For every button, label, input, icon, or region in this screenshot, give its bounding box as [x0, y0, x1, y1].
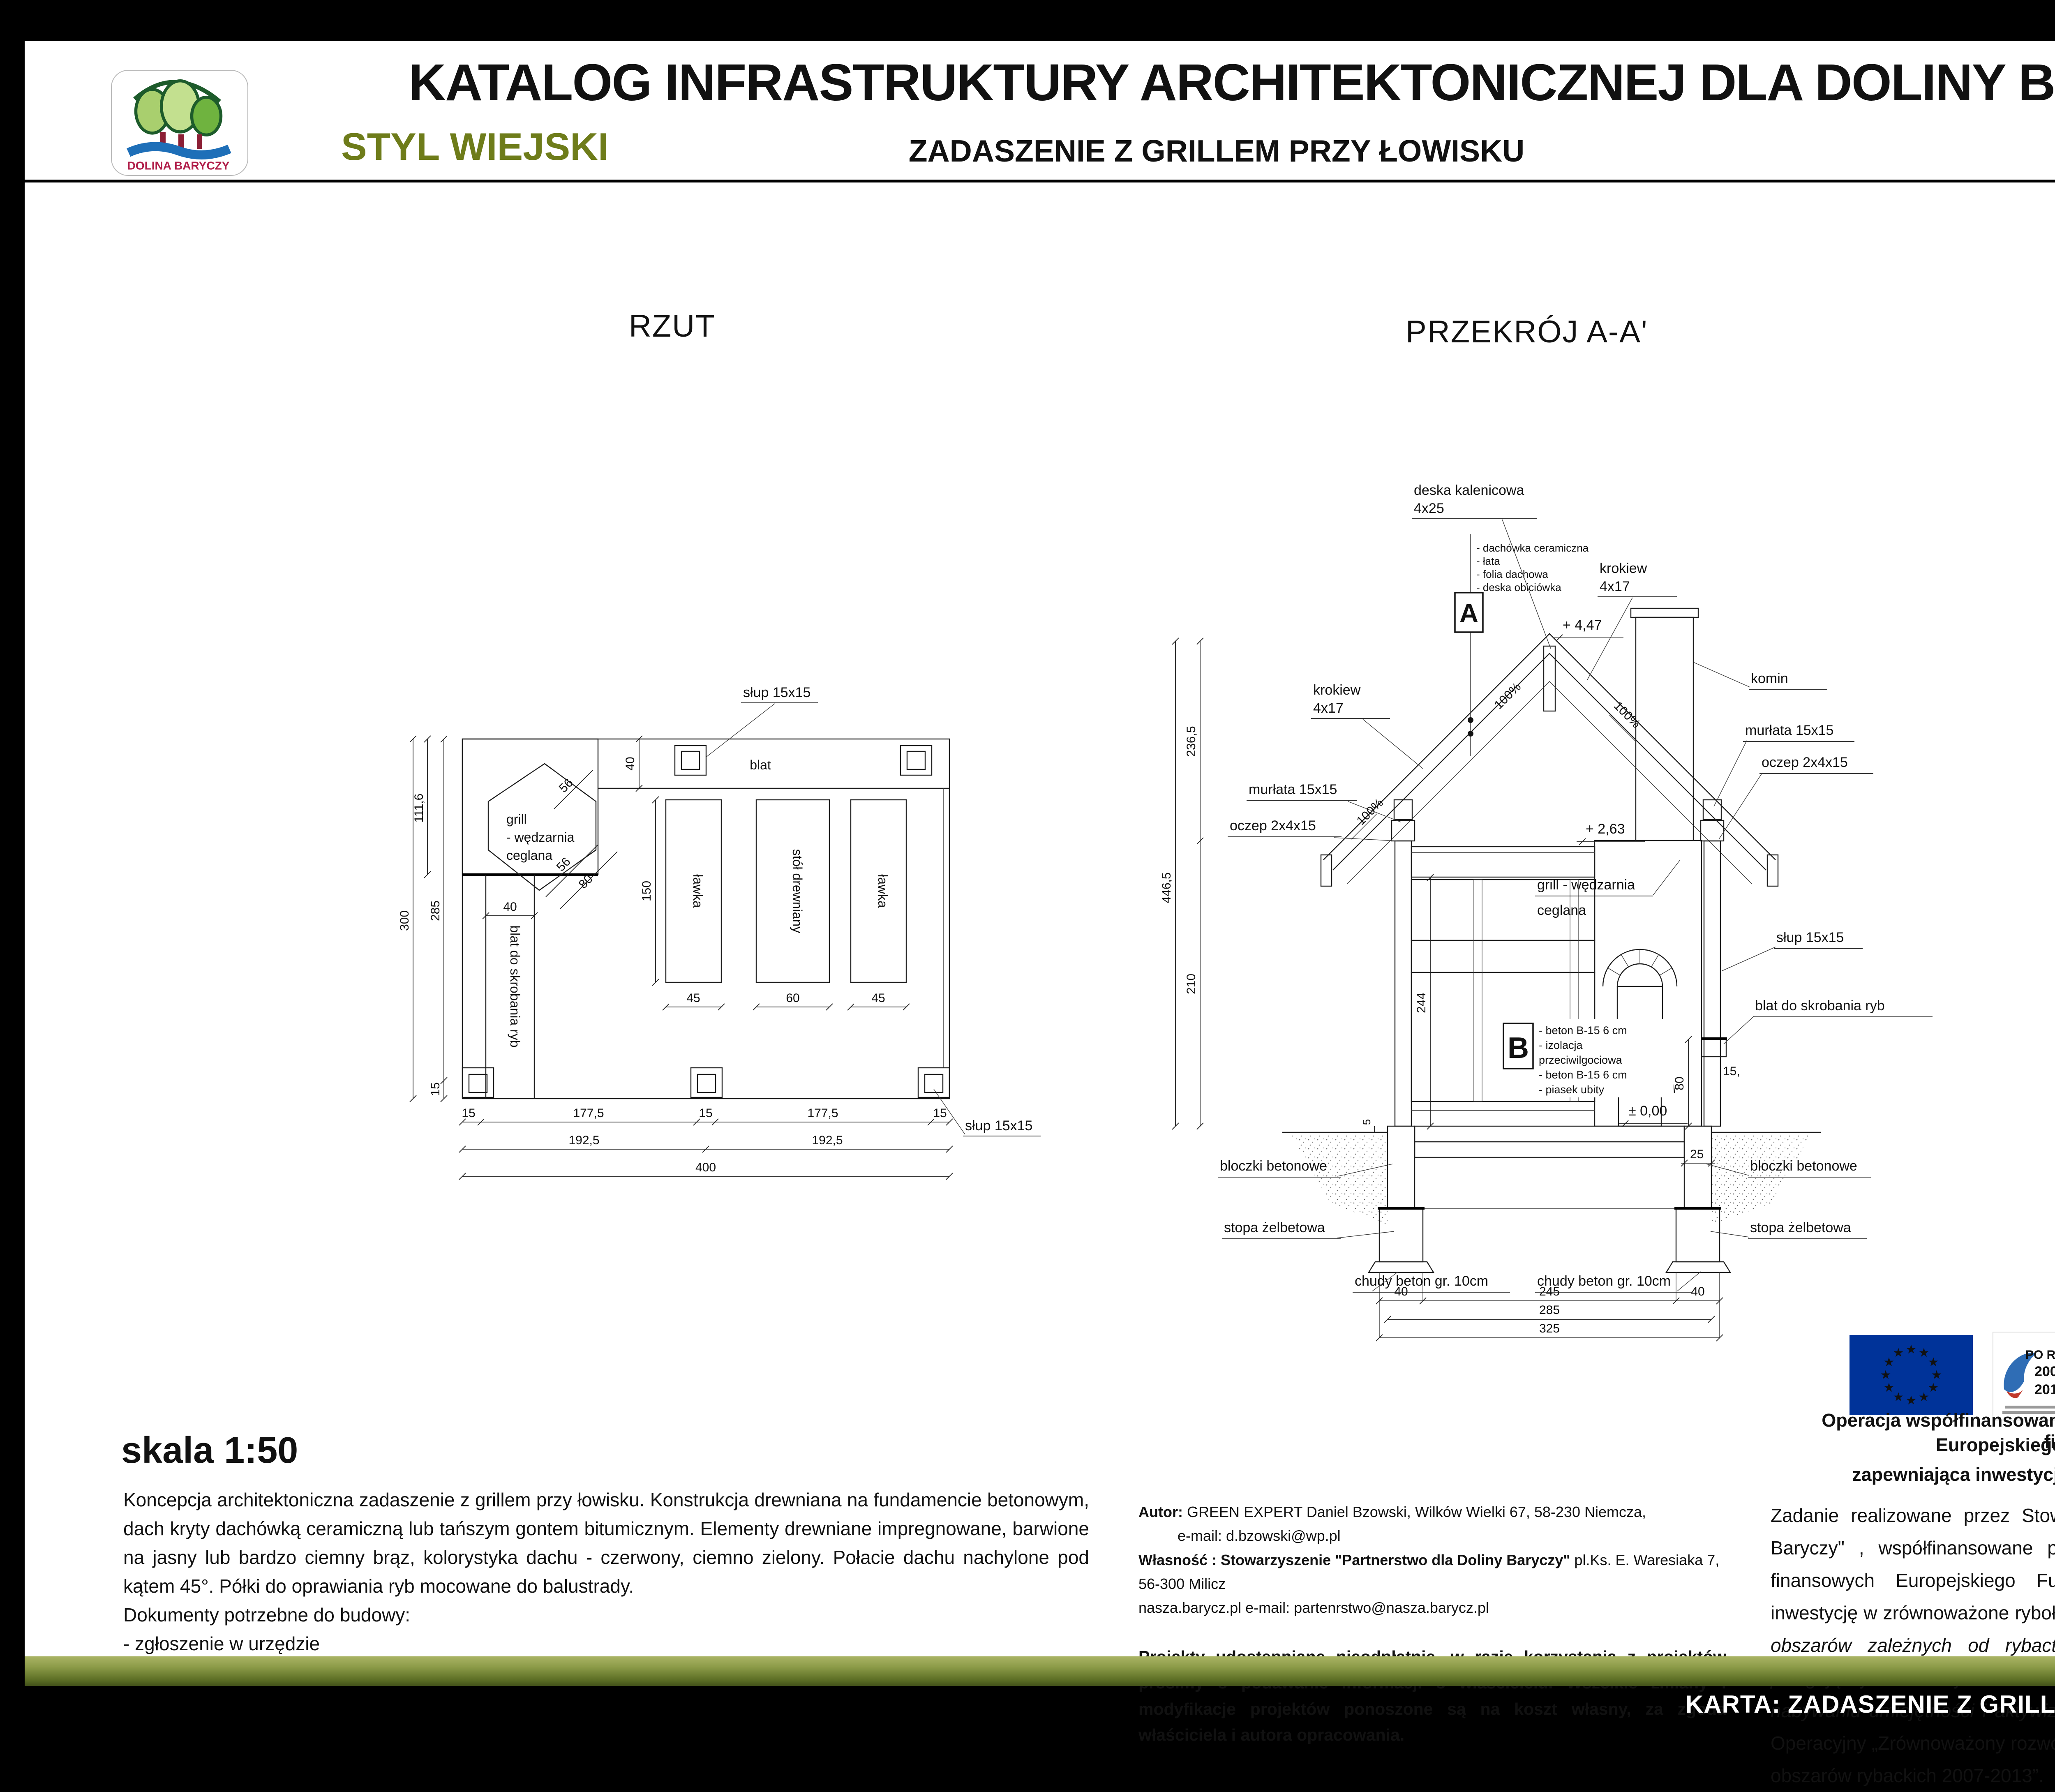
svg-text:★: ★ — [1919, 1390, 1930, 1404]
plan-blat-label: blat — [750, 757, 771, 772]
svg-text:oczep 2x4x15: oczep 2x4x15 — [1762, 755, 1848, 770]
svg-text:murłata 15x15: murłata 15x15 — [1249, 782, 1337, 797]
a-box-letter: A — [1459, 598, 1478, 628]
catalog-sheet-page: { "header": { "title": "KATALOG INFRASTR… — [0, 0, 2055, 1727]
svg-text:4x25: 4x25 — [1414, 501, 1444, 516]
svg-text:- piasek ubity: - piasek ubity — [1539, 1083, 1605, 1096]
page-title: KATALOG INFRASTRUKTURY ARCHITEKTONICZNEJ… — [288, 53, 2055, 112]
credits-block: Autor: GREEN EXPERT Daniel Bzowski, Wilk… — [1138, 1500, 1726, 1748]
svg-text:300: 300 — [398, 910, 411, 931]
plan-slup-bottom-label: słup 15x15 — [965, 1118, 1032, 1134]
svg-text:45: 45 — [871, 991, 885, 1005]
plan-grill-label: grill — [506, 812, 527, 827]
svg-text:★: ★ — [1880, 1368, 1891, 1382]
svg-text:15: 15 — [933, 1106, 947, 1120]
svg-text:56: 56 — [554, 855, 573, 874]
svg-text:★: ★ — [1931, 1368, 1942, 1382]
svg-text:244: 244 — [1415, 993, 1428, 1013]
section-drawing: A - dachówka ceramiczna - łata - folia d… — [1126, 469, 1973, 1348]
sheet: DOLINA BARYCZY KATALOG INFRASTRUKTURY AR… — [25, 41, 2055, 1656]
eu-flag: ★★ ★★ ★★ ★★ ★★ ★★ — [1849, 1335, 1973, 1415]
footer-accent-bar — [25, 1656, 2055, 1686]
svg-text:- łata: - łata — [1476, 555, 1500, 567]
svg-text:- beton B-15 6 cm: - beton B-15 6 cm — [1539, 1069, 1627, 1081]
svg-text:- izolacja: - izolacja — [1539, 1039, 1583, 1051]
svg-text:blat do skrobania ryb: blat do skrobania ryb — [1755, 998, 1885, 1014]
plan-drawing: grill - wędzarnia ceglana blat ławka stó… — [403, 658, 1085, 1200]
svg-text:192,5: 192,5 — [568, 1134, 599, 1147]
svg-text:15: 15 — [429, 1082, 442, 1096]
header: DOLINA BARYCZY KATALOG INFRASTRUKTURY AR… — [25, 41, 2055, 182]
po-ryby-logo: PO RYBY 2007 2013 — [1993, 1332, 2055, 1420]
section-a-mark: A - dachówka ceramiczna - łata - folia d… — [1455, 534, 1589, 756]
svg-text:★: ★ — [1906, 1394, 1917, 1407]
svg-text:★: ★ — [1906, 1343, 1917, 1356]
svg-text:komin: komin — [1751, 671, 1788, 686]
site-line: nasza.barycz.pl e-mail: partenrstwo@nasz… — [1138, 1596, 1726, 1620]
svg-text:40: 40 — [623, 757, 637, 770]
svg-text:★: ★ — [1928, 1356, 1939, 1369]
plan-lawka-right: ławka — [875, 874, 890, 908]
svg-text:4x17: 4x17 — [1313, 700, 1344, 716]
svg-text:stopa żelbetowa: stopa żelbetowa — [1224, 1220, 1325, 1235]
svg-text:- folia dachowa: - folia dachowa — [1476, 568, 1548, 580]
svg-text:★: ★ — [1893, 1390, 1904, 1404]
svg-text:446,5: 446,5 — [1160, 872, 1173, 903]
svg-text:± 0,00: ± 0,00 — [1628, 1103, 1667, 1119]
svg-text:krokiew: krokiew — [1600, 561, 1647, 576]
svg-text:236,5: 236,5 — [1185, 726, 1198, 757]
plan-dimensions: 300 111,6 285 15 40 150 40 56 56 80 — [398, 736, 953, 1180]
svg-text:krokiew: krokiew — [1313, 682, 1361, 698]
section-b-mark: B - beton B-15 6 cm - izolacja przeciwil… — [1503, 1019, 1674, 1097]
svg-text:285: 285 — [1539, 1303, 1560, 1317]
svg-text:15: 15 — [699, 1106, 712, 1120]
owner-line: Własność : Stowarzyszenie "Partnerstwo d… — [1138, 1548, 1726, 1596]
svg-text:chudy beton gr. 10cm: chudy beton gr. 10cm — [1355, 1273, 1488, 1289]
svg-text:chudy beton gr. 10cm: chudy beton gr. 10cm — [1537, 1273, 1671, 1289]
svg-text:80: 80 — [1673, 1076, 1686, 1090]
author-line: Autor: GREEN EXPERT Daniel Bzowski, Wilk… — [1138, 1500, 1726, 1524]
svg-text:2007: 2007 — [2034, 1364, 2055, 1379]
svg-text:- dachówka ceramiczna: - dachówka ceramiczna — [1476, 542, 1589, 554]
svg-text:210: 210 — [1185, 974, 1198, 994]
b-box-letter: B — [1508, 1032, 1529, 1065]
svg-text:40: 40 — [503, 900, 517, 914]
svg-text:15,: 15, — [1723, 1065, 1740, 1078]
plan-lawka-left: ławka — [690, 874, 705, 908]
svg-text:stopa żelbetowa: stopa żelbetowa — [1750, 1220, 1851, 1235]
docs-item: - zgłoszenie w urzędzie — [123, 1630, 1089, 1658]
plan-blat-ryby: blat do skrobania ryb — [508, 925, 522, 1047]
plan-title: RZUT — [629, 308, 716, 344]
dolina-baryczy-logo: DOLINA BARYCZY — [111, 70, 248, 176]
svg-text:285: 285 — [429, 901, 442, 921]
svg-text:5: 5 — [1360, 1119, 1373, 1125]
svg-text:bloczki betonowe: bloczki betonowe — [1220, 1158, 1327, 1174]
description-block: Koncepcja architektoniczna zadaszenie z … — [123, 1486, 1089, 1658]
plan-stol: stół drewniany — [790, 849, 805, 933]
plan-structure — [462, 739, 949, 1099]
svg-text:- beton B-15 6 cm: - beton B-15 6 cm — [1539, 1024, 1627, 1037]
svg-text:25: 25 — [1690, 1148, 1704, 1161]
svg-text:150: 150 — [640, 881, 653, 901]
svg-text:deska kalenicowa: deska kalenicowa — [1414, 483, 1524, 498]
svg-text:murłata 15x15: murłata 15x15 — [1745, 723, 1833, 738]
svg-text:111,6: 111,6 — [412, 794, 426, 823]
description-text: Koncepcja architektoniczna zadaszenie z … — [123, 1486, 1089, 1601]
svg-text:★: ★ — [1884, 1381, 1895, 1395]
plan-slup-top-label: słup 15x15 — [743, 685, 810, 700]
svg-text:325: 325 — [1539, 1322, 1560, 1335]
author-email: e-mail: d.bzowski@wp.pl — [1138, 1524, 1726, 1548]
svg-text:★: ★ — [1928, 1381, 1939, 1395]
svg-text:+ 2,63: + 2,63 — [1586, 821, 1625, 837]
svg-text:177,5: 177,5 — [807, 1106, 838, 1120]
svg-text:15: 15 — [462, 1106, 475, 1120]
plan-text-labels: grill - wędzarnia ceglana blat ławka stó… — [506, 685, 1041, 1136]
funding-paragraph: Zadanie realizowane przez Stowarzyszenie… — [1771, 1499, 2055, 1792]
svg-text:oczep 2x4x15: oczep 2x4x15 — [1230, 818, 1316, 834]
svg-text:bloczki betonowe: bloczki betonowe — [1750, 1158, 1857, 1174]
svg-text:40: 40 — [1691, 1285, 1704, 1298]
docs-heading: Dokumenty potrzebne do budowy: — [123, 1601, 1089, 1630]
svg-text:słup 15x15: słup 15x15 — [1776, 930, 1844, 945]
svg-text:★: ★ — [1893, 1346, 1904, 1360]
sheet-subtitle: ZADASZENIE Z GRILLEM PRZY ŁOWISKU — [785, 133, 1648, 169]
svg-text:4x17: 4x17 — [1600, 579, 1630, 594]
svg-text:56: 56 — [556, 776, 576, 795]
svg-text:ceglana: ceglana — [1537, 903, 1586, 918]
funding-line2: Europejskiego Funduszu Rybackiego — [1806, 1434, 2055, 1456]
dolina-baryczy-logo-art: DOLINA BARYCZY — [114, 72, 242, 173]
dolina-logo-text: DOLINA BARYCZY — [127, 159, 229, 172]
svg-text:- wędzarnia: - wędzarnia — [506, 830, 575, 845]
karta-label: KARTA: ZADASZENIE Z GRILLEM PRZY ŁOWISKU… — [1686, 1690, 2055, 1718]
svg-text:- deska obiciówka: - deska obiciówka — [1476, 581, 1561, 593]
svg-text:400: 400 — [695, 1161, 716, 1174]
style-label: STYL WIEJSKI — [341, 125, 609, 169]
svg-text:60: 60 — [786, 991, 799, 1005]
svg-text:177,5: 177,5 — [573, 1106, 604, 1120]
scale-label: skala 1:50 — [121, 1429, 298, 1472]
svg-text:100%: 100% — [1354, 796, 1386, 828]
section-title: PRZEKRÓJ A-A' — [1406, 314, 1648, 350]
svg-text:45: 45 — [686, 991, 700, 1005]
svg-text:+ 4,47: + 4,47 — [1563, 617, 1602, 633]
svg-text:PO RYBY: PO RYBY — [2025, 1348, 2055, 1362]
svg-text:ceglana: ceglana — [506, 848, 552, 863]
svg-text:grill - wędzarnia: grill - wędzarnia — [1537, 877, 1635, 893]
section-callouts: deska kalenicowa 4x25 krokiew 4x17 kroki… — [1218, 483, 1933, 1292]
svg-text:2013: 2013 — [2034, 1382, 2055, 1397]
svg-text:przeciwilgociowa: przeciwilgociowa — [1539, 1054, 1623, 1066]
svg-text:192,5: 192,5 — [812, 1134, 843, 1147]
svg-text:100%: 100% — [1611, 699, 1643, 731]
funding-line3: zapewniająca inwestycje w zrównoważone r… — [1806, 1464, 2055, 1485]
section-dimensions: 446,5 236,5 210 244 80 15, 5 25 40 245 — [1160, 638, 1740, 1341]
